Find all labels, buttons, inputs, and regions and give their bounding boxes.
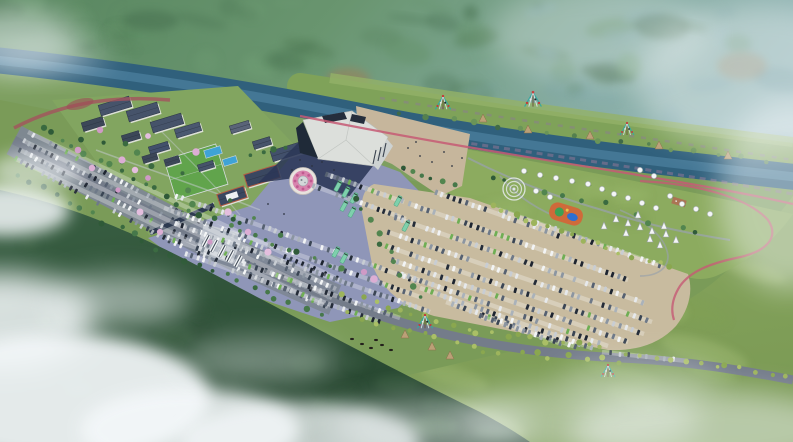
tree [561, 341, 565, 345]
tree [397, 112, 401, 116]
tree [659, 260, 663, 264]
dome-tent [569, 178, 574, 183]
tree [520, 350, 525, 355]
dome-tent [651, 173, 656, 178]
parked-car [609, 350, 612, 355]
dome-tent [653, 205, 658, 210]
tree [368, 217, 374, 223]
tree [238, 221, 242, 225]
emblem-center-rock [298, 176, 308, 186]
tree [270, 146, 276, 152]
flag-dot [526, 102, 528, 104]
dome-tent [553, 175, 558, 180]
tree [693, 230, 698, 235]
pedestrian [407, 147, 409, 149]
tree [468, 328, 472, 332]
tree [566, 352, 572, 358]
dome-tent [625, 195, 630, 200]
tree [559, 228, 565, 234]
blossom-tree [89, 165, 95, 171]
tree [41, 125, 47, 131]
grazing-animal [360, 343, 364, 345]
flag-top [626, 122, 628, 124]
flower-dot [302, 188, 305, 191]
flower-dot [296, 185, 299, 188]
tree [717, 153, 721, 157]
forest-blob [188, 304, 207, 319]
tree [249, 153, 253, 157]
cloud [560, 358, 720, 402]
tree [285, 300, 290, 305]
tree [570, 232, 574, 236]
grazing-animal [374, 339, 378, 341]
tree [699, 361, 704, 366]
tree [424, 331, 428, 335]
pedestrian [461, 157, 463, 159]
tree [78, 137, 84, 143]
dome-tent [533, 188, 538, 193]
tree [518, 126, 523, 131]
flag-dot [429, 324, 431, 326]
tree [211, 269, 215, 273]
tree [252, 216, 256, 220]
dome-tent [537, 172, 542, 177]
tree [579, 198, 584, 203]
tree [666, 264, 672, 270]
tree [262, 150, 266, 154]
aerial-resort-rendering [0, 0, 793, 442]
tree [80, 151, 86, 157]
tree [386, 305, 391, 310]
tree [196, 212, 202, 218]
forest-blob [345, 353, 368, 370]
flag-dot [436, 105, 438, 107]
tree [320, 313, 324, 317]
blossom-tree [97, 127, 103, 133]
tree [629, 255, 634, 260]
tree [181, 171, 185, 175]
grazing-animal [350, 338, 354, 340]
tree [134, 149, 140, 155]
tree [99, 158, 104, 163]
tree [545, 356, 550, 361]
flag-top [424, 314, 426, 316]
blossom-tree [75, 147, 82, 154]
flag-dot [621, 131, 623, 133]
tree [238, 229, 242, 233]
dome-tent [637, 167, 642, 172]
flower-dot [307, 185, 310, 188]
tree [603, 200, 608, 205]
tree [581, 239, 586, 244]
blossom-tree [245, 229, 251, 235]
flag-dot [530, 98, 532, 100]
blossom-tree [137, 209, 144, 216]
dome-tent [547, 194, 552, 199]
tree [253, 233, 258, 238]
tree [265, 290, 270, 295]
tree [669, 148, 673, 152]
tree [359, 207, 363, 211]
blossom-tree [207, 239, 212, 244]
dome-tent [521, 168, 526, 173]
tree [409, 313, 413, 317]
tree [527, 334, 532, 339]
tree [691, 148, 697, 154]
tree [264, 238, 268, 242]
tree [624, 353, 628, 357]
blossom-tree [264, 248, 271, 255]
tree [645, 220, 651, 226]
tree [523, 218, 528, 223]
tree [91, 210, 95, 214]
pedestrian [451, 165, 453, 167]
tree [545, 131, 549, 135]
tree [153, 248, 158, 253]
tree [516, 332, 521, 337]
blossom-tree [192, 148, 199, 155]
pedestrian [283, 213, 285, 215]
tree [77, 205, 83, 211]
scene-canvas [0, 0, 793, 442]
tree [472, 330, 478, 336]
tree [490, 330, 494, 334]
tree [599, 355, 605, 361]
tree [531, 220, 537, 226]
pedestrian [311, 165, 313, 167]
pedestrian [443, 151, 445, 153]
tree [419, 295, 423, 299]
tree [338, 265, 344, 271]
blossom-tree [224, 208, 231, 215]
grazing-animal [369, 347, 373, 349]
tree [389, 250, 393, 254]
tree [391, 326, 395, 330]
tree [226, 272, 230, 276]
dome-tent [639, 200, 644, 205]
tree [429, 177, 433, 181]
dome-tent [611, 191, 616, 196]
blossom-tree [361, 269, 367, 275]
tree [48, 129, 54, 135]
tree [197, 263, 202, 268]
tree [106, 161, 112, 167]
tree [234, 278, 238, 282]
tree [61, 139, 65, 143]
tree [304, 306, 310, 312]
flower-emblem-plaza [290, 168, 317, 195]
tree [293, 249, 299, 255]
tree [514, 211, 520, 217]
blossom-tree [132, 167, 138, 173]
tree [576, 340, 582, 346]
tree [148, 163, 154, 169]
tree [410, 283, 417, 290]
pedestrian [415, 141, 417, 143]
dome-tent [667, 193, 672, 198]
tree [616, 252, 620, 256]
tree [398, 308, 403, 313]
grazing-animal [380, 344, 384, 346]
pedestrian [333, 169, 335, 171]
tree [560, 193, 565, 198]
tree [431, 334, 436, 339]
tree [212, 215, 218, 221]
tree [231, 217, 236, 222]
tree [181, 258, 187, 264]
tree [167, 252, 173, 258]
grazing-animal [389, 349, 393, 351]
tree [102, 141, 106, 145]
flag-dot [538, 102, 540, 104]
tree [328, 264, 332, 268]
rock-speckle [304, 182, 306, 184]
tree [491, 176, 496, 181]
tree [681, 225, 686, 230]
dome-tent [679, 201, 684, 206]
blossom-tree [145, 133, 151, 139]
tree [271, 296, 277, 302]
tree [753, 370, 758, 375]
flag-dot [444, 102, 446, 104]
dome-tent [707, 211, 712, 216]
tree [132, 230, 138, 236]
tree [377, 242, 382, 247]
tree [455, 340, 459, 344]
tree [144, 182, 148, 186]
tree [375, 299, 380, 304]
pedestrian [291, 169, 293, 171]
tree [452, 116, 457, 121]
tree [69, 144, 73, 148]
tree [422, 114, 428, 120]
tree [721, 362, 727, 368]
tree [361, 294, 366, 299]
tree [499, 208, 504, 213]
tree [647, 142, 651, 146]
tree [771, 373, 775, 377]
tree [596, 240, 601, 245]
blossom-tree [370, 275, 378, 283]
flower-dot [294, 180, 297, 183]
blossom-tree [145, 175, 151, 181]
flag-dot [447, 105, 449, 107]
parked-car [619, 352, 622, 357]
tree [542, 339, 548, 345]
flower-dot [302, 172, 305, 175]
tree [451, 323, 456, 328]
tree [597, 345, 601, 349]
tree [408, 328, 412, 332]
flag-dot [624, 128, 626, 130]
tree [374, 322, 379, 327]
tree [716, 365, 720, 369]
tree [140, 240, 144, 244]
blossom-tree [157, 229, 163, 235]
tree [534, 349, 541, 356]
forest-blob [155, 326, 194, 346]
tree [491, 203, 497, 209]
tree [648, 259, 652, 263]
flag-dot [534, 98, 536, 100]
tree [587, 342, 591, 346]
flag-top [532, 91, 535, 94]
tree [595, 138, 601, 144]
tree [453, 182, 458, 187]
tree [360, 317, 365, 322]
tree [185, 187, 191, 193]
tree [420, 174, 424, 178]
pedestrian [419, 155, 421, 157]
tree [313, 256, 317, 260]
tree [585, 357, 590, 362]
tree [496, 351, 501, 356]
cloud [50, 274, 190, 326]
tree [229, 223, 234, 228]
flower-dot [307, 174, 310, 177]
tree [228, 198, 232, 202]
tree [270, 243, 274, 247]
flag-dot [440, 102, 442, 104]
tree [604, 246, 608, 250]
tree [638, 354, 642, 358]
forest-blob [21, 236, 38, 250]
blossom-tree [118, 156, 125, 163]
cloud [180, 336, 340, 384]
forest-blob [109, 256, 149, 268]
tree [123, 141, 129, 147]
tree [572, 133, 577, 138]
tree [506, 334, 512, 340]
tree [472, 344, 477, 349]
tree [471, 119, 477, 125]
tree [121, 225, 125, 229]
forest-blob [334, 386, 356, 405]
dome-tent [693, 206, 698, 211]
tree [189, 201, 196, 208]
tree [618, 139, 623, 144]
tree [164, 194, 170, 200]
tree [440, 178, 446, 184]
pedestrian [321, 161, 323, 163]
tree [391, 259, 396, 264]
tree [737, 365, 741, 369]
flag-dot [426, 321, 428, 323]
tree [120, 169, 124, 173]
tree [434, 319, 439, 324]
flower-dot [296, 174, 299, 177]
pedestrian [299, 159, 301, 161]
tree [345, 310, 349, 314]
tree [397, 273, 402, 278]
tree [783, 374, 788, 379]
tree [253, 285, 258, 290]
circular-plaza [503, 178, 525, 200]
flag-dot [628, 128, 630, 130]
flag-dot [418, 324, 420, 326]
tree [545, 224, 549, 228]
tree [502, 178, 506, 182]
tree [542, 189, 548, 195]
tree [287, 248, 292, 253]
flag-top [442, 95, 444, 97]
pedestrian [431, 161, 433, 163]
tree [495, 125, 500, 130]
flower-dot [310, 180, 313, 183]
pedestrian [267, 203, 269, 205]
tree [410, 169, 415, 174]
tree [99, 221, 105, 227]
tree [353, 196, 359, 202]
dome-tent [585, 181, 590, 186]
tree [284, 146, 288, 150]
rock-speckle [301, 179, 303, 181]
tree [152, 185, 157, 190]
tree [278, 233, 283, 238]
tree [131, 177, 135, 181]
dome-tent [599, 186, 604, 191]
tree [377, 230, 383, 236]
blossom-tree [115, 187, 120, 192]
flag-dot [422, 321, 424, 323]
tree [174, 202, 179, 207]
tree [481, 350, 485, 354]
flag-dot [631, 131, 633, 133]
pedestrian [403, 169, 405, 171]
tree [187, 209, 191, 213]
tree [339, 291, 345, 297]
